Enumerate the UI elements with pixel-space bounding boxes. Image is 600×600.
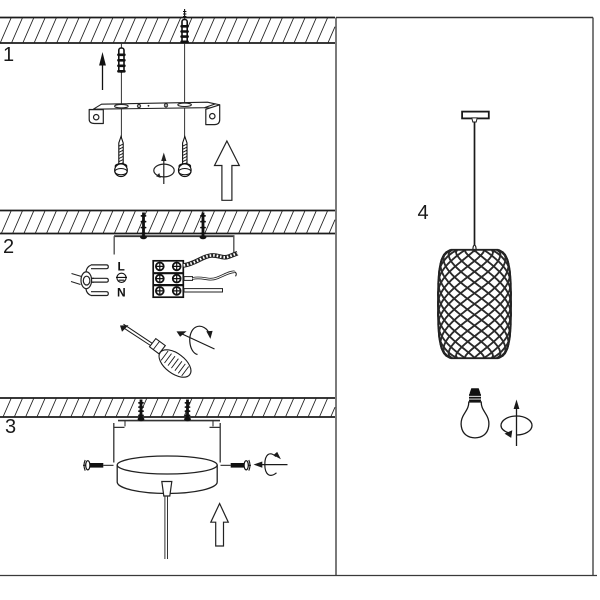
svg-text:1: 1: [3, 44, 14, 66]
svg-text:4: 4: [418, 202, 429, 224]
svg-text:N: N: [117, 286, 126, 300]
svg-text:2: 2: [3, 236, 14, 258]
svg-text:L: L: [118, 260, 125, 274]
svg-text:3: 3: [5, 416, 16, 438]
